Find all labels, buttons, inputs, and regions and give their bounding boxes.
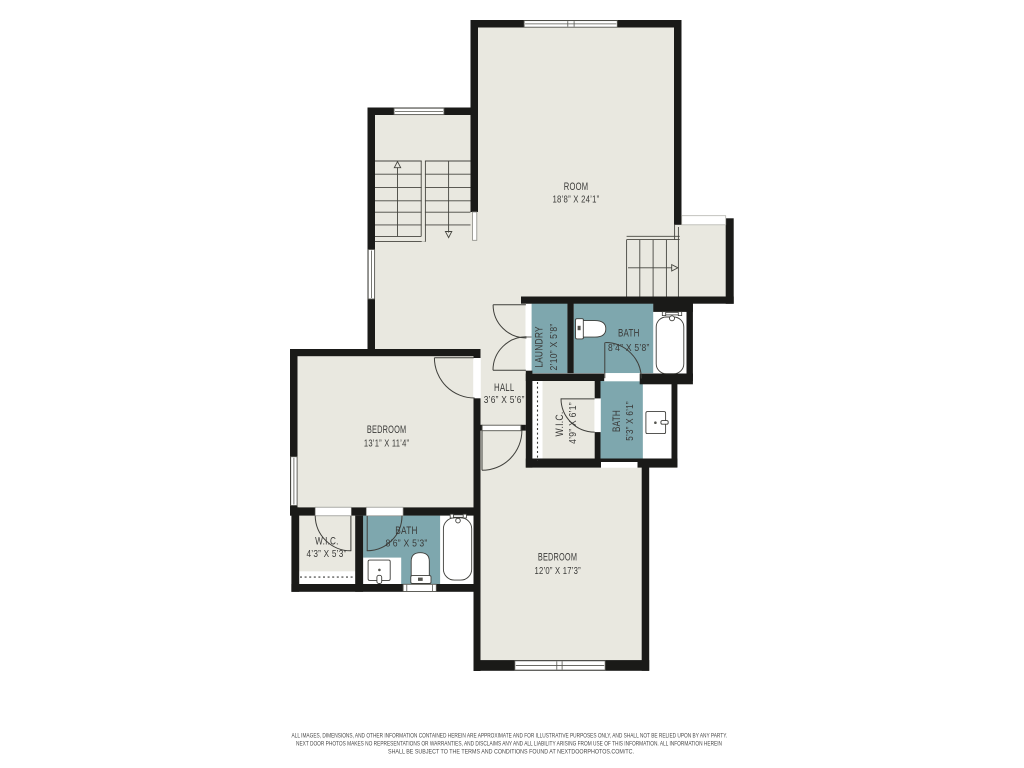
svg-text:ALL IMAGES, DIMENSIONS, AND OT: ALL IMAGES, DIMENSIONS, AND OTHER INFORM… (292, 734, 728, 740)
svg-text:18’8” X 24’1”: 18’8” X 24’1” (553, 193, 600, 205)
svg-text:BATH: BATH (395, 525, 418, 537)
svg-text:ROOM: ROOM (564, 181, 589, 193)
svg-text:W.I.C.: W.I.C. (554, 412, 566, 437)
svg-text:LAUNDRY: LAUNDRY (534, 326, 546, 368)
svg-text:5’3” X 6’1”: 5’3” X 6’1” (624, 401, 636, 441)
svg-text:SHALL BE SUBJECT TO THE TERMS: SHALL BE SUBJECT TO THE TERMS AND CONDIT… (388, 750, 634, 756)
svg-text:NEXT DOOR PHOTOS MAKES NO REPR: NEXT DOOR PHOTOS MAKES NO REPRESENTATION… (296, 742, 722, 748)
svg-text:2’10” X 5’8”: 2’10” X 5’8” (548, 323, 560, 370)
svg-text:W.I.C.: W.I.C. (315, 536, 339, 548)
svg-text:BATH: BATH (611, 410, 623, 432)
svg-text:BEDROOM: BEDROOM (538, 552, 577, 564)
svg-text:8’6” X 5’3”: 8’6” X 5’3” (386, 537, 428, 549)
svg-text:3’6” X 5’6”: 3’6” X 5’6” (484, 394, 525, 406)
svg-text:4’3” X 5’3”: 4’3” X 5’3” (306, 548, 346, 560)
svg-text:BEDROOM: BEDROOM (367, 424, 407, 436)
svg-text:BATH: BATH (618, 328, 640, 340)
svg-text:8’4” X 5’8”: 8’4” X 5’8” (608, 342, 650, 354)
svg-text:13’1” X 11’4”: 13’1” X 11’4” (364, 438, 410, 450)
svg-text:4’9” X 6’1”: 4’9” X 6’1” (567, 402, 579, 444)
svg-text:HALL: HALL (494, 382, 515, 394)
svg-text:12’0” X 17’3”: 12’0” X 17’3” (535, 565, 581, 577)
